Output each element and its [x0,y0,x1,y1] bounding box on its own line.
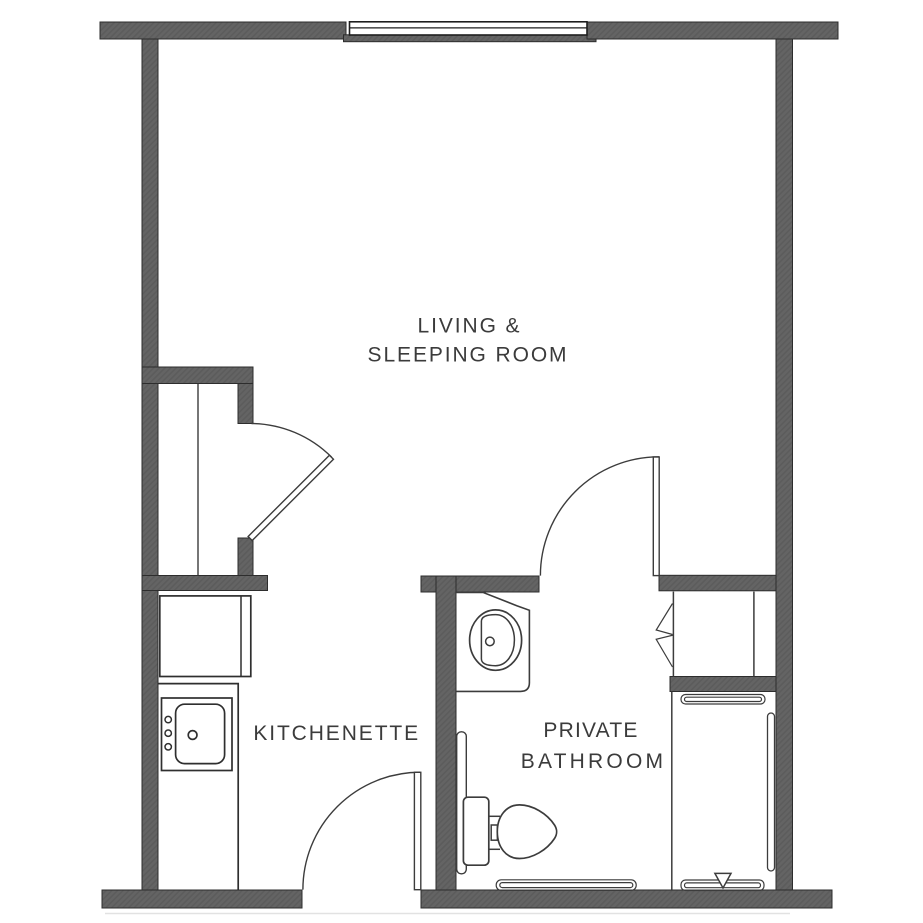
svg-text:LIVING &: LIVING & [418,315,522,338]
svg-text:BATHROOM: BATHROOM [521,750,666,773]
svg-text:KITCHENETTE: KITCHENETTE [253,722,420,745]
svg-text:SLEEPING ROOM: SLEEPING ROOM [368,343,569,366]
svg-text:PRIVATE: PRIVATE [543,719,638,742]
